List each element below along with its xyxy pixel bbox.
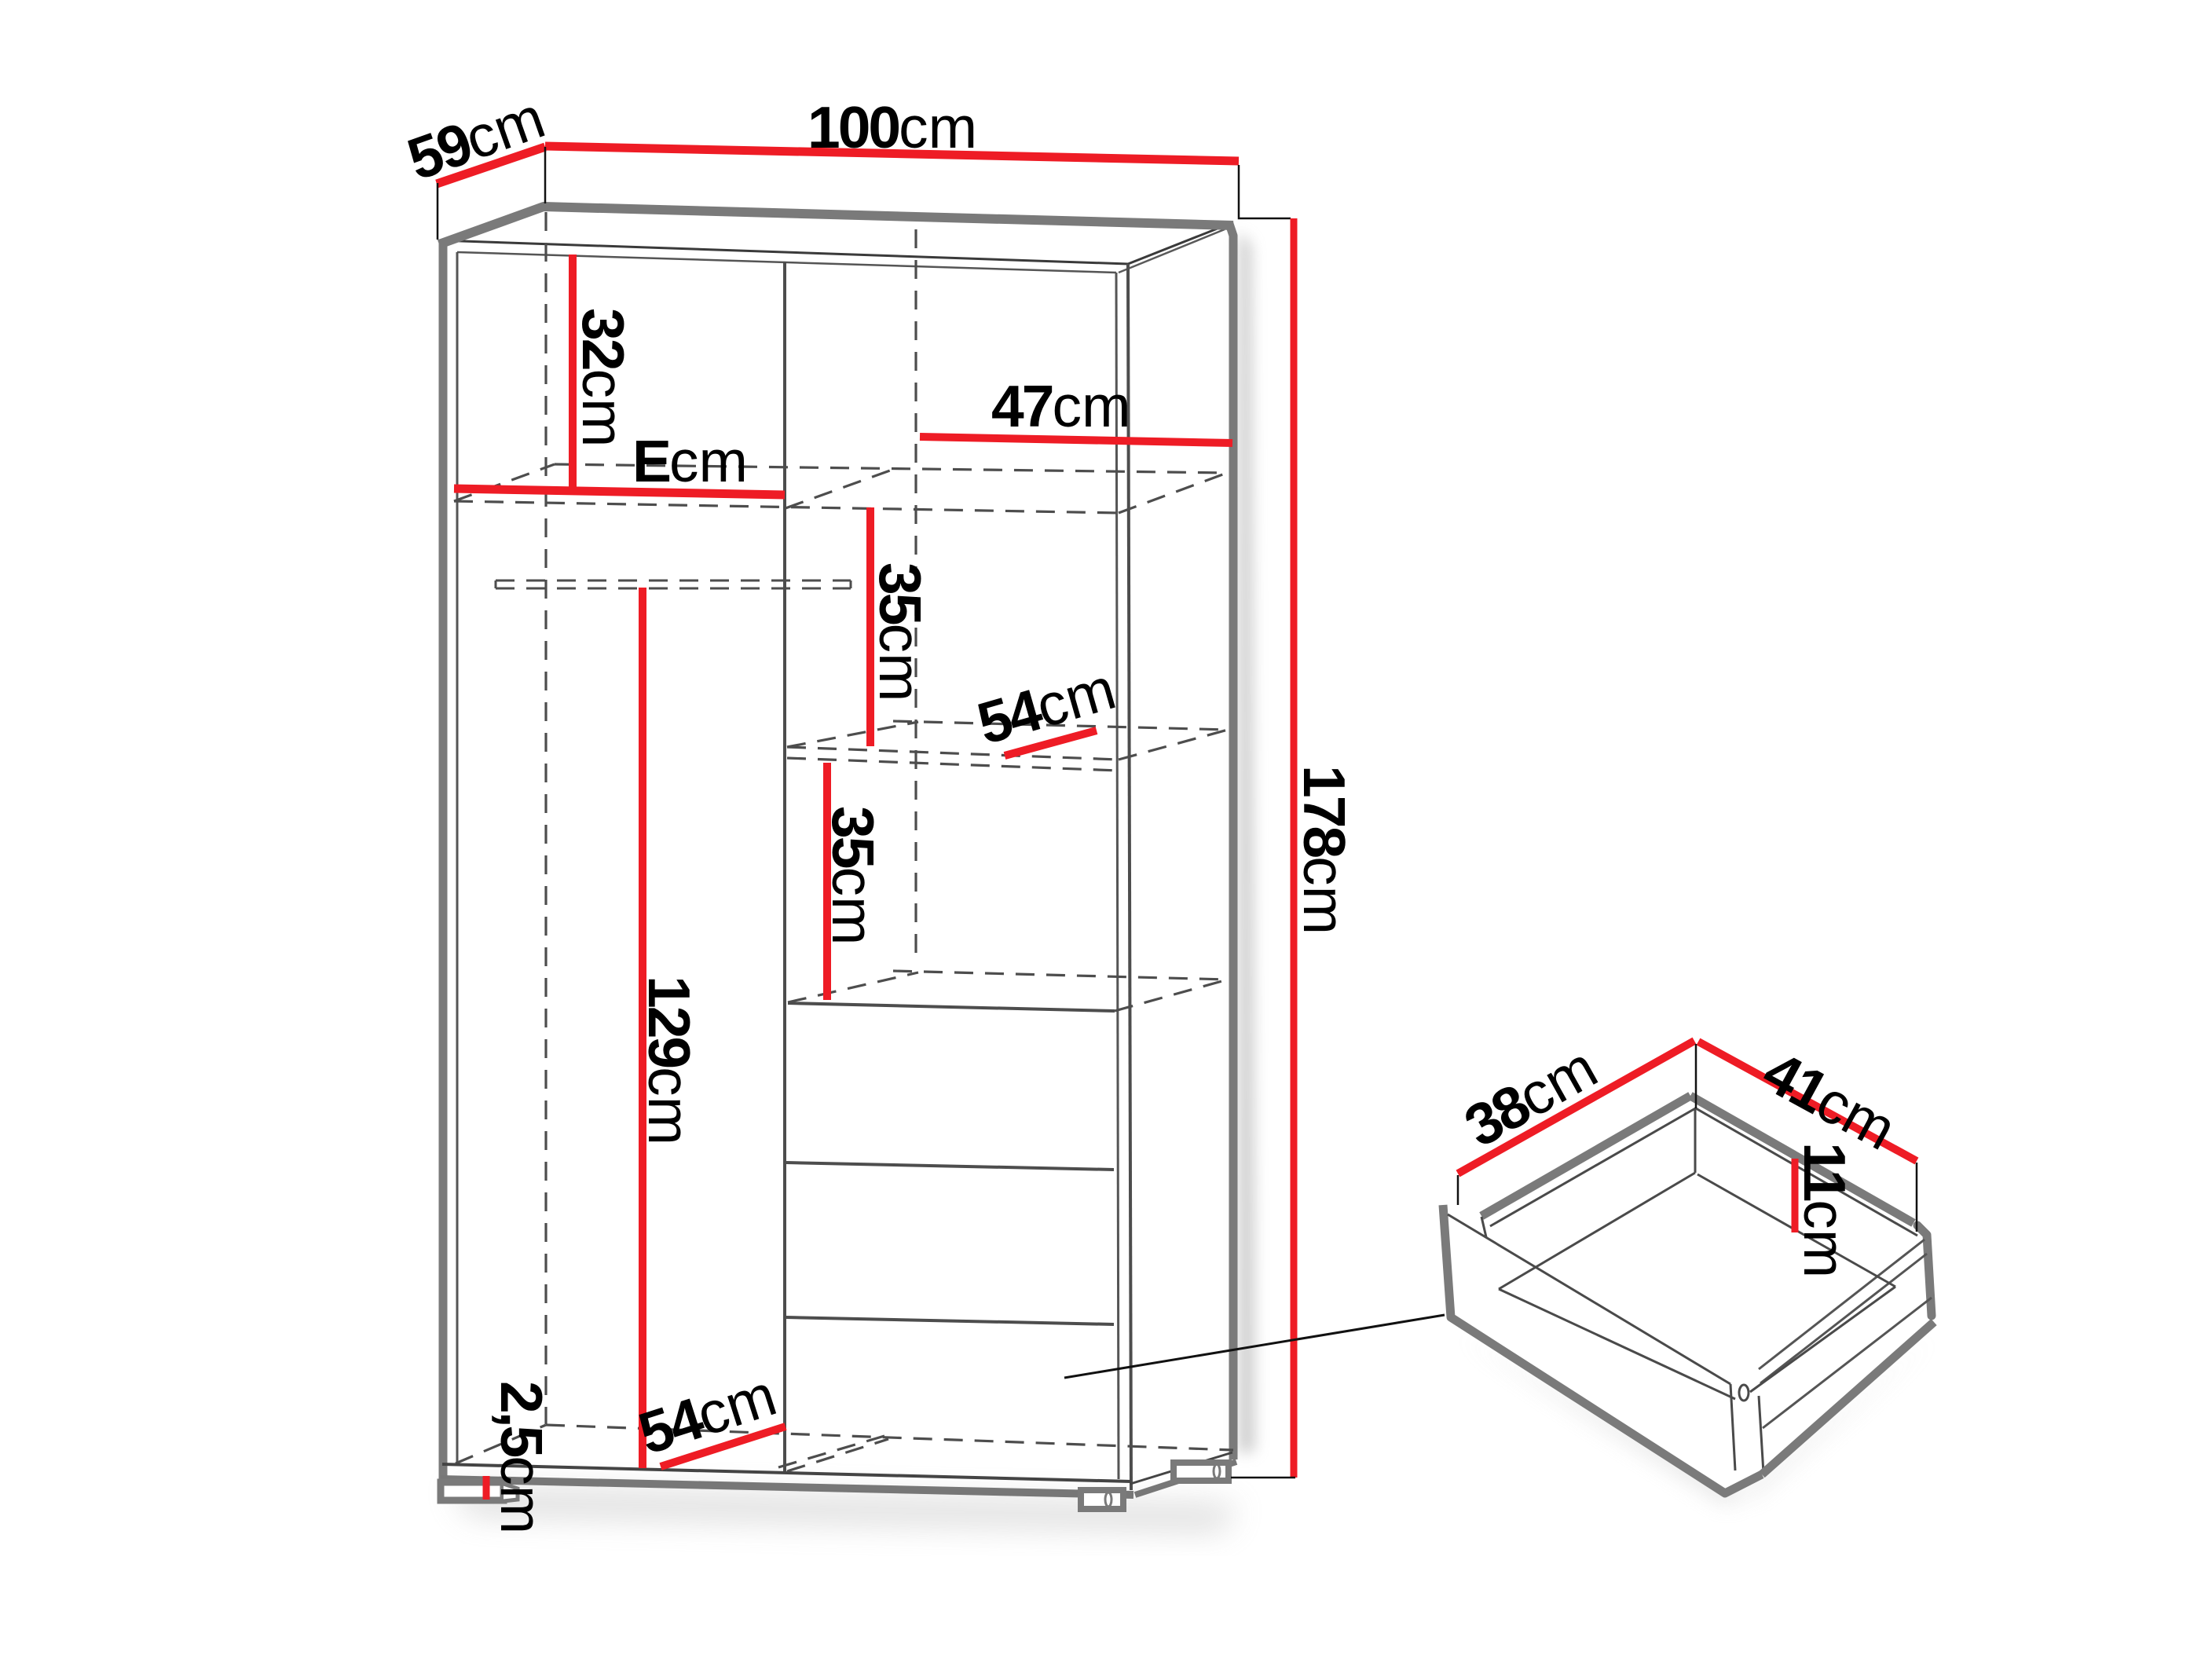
svg-text:Ecm: Ecm	[632, 428, 748, 494]
svg-text:11cm: 11cm	[1792, 1142, 1858, 1278]
svg-text:47cm: 47cm	[991, 373, 1130, 439]
svg-text:32cm: 32cm	[570, 308, 636, 447]
svg-text:178cm: 178cm	[1291, 765, 1357, 935]
svg-text:2,5cm: 2,5cm	[489, 1381, 555, 1534]
svg-text:35cm: 35cm	[867, 562, 933, 701]
svg-text:100cm: 100cm	[808, 94, 977, 160]
svg-text:35cm: 35cm	[820, 806, 886, 945]
svg-text:129cm: 129cm	[636, 976, 702, 1145]
